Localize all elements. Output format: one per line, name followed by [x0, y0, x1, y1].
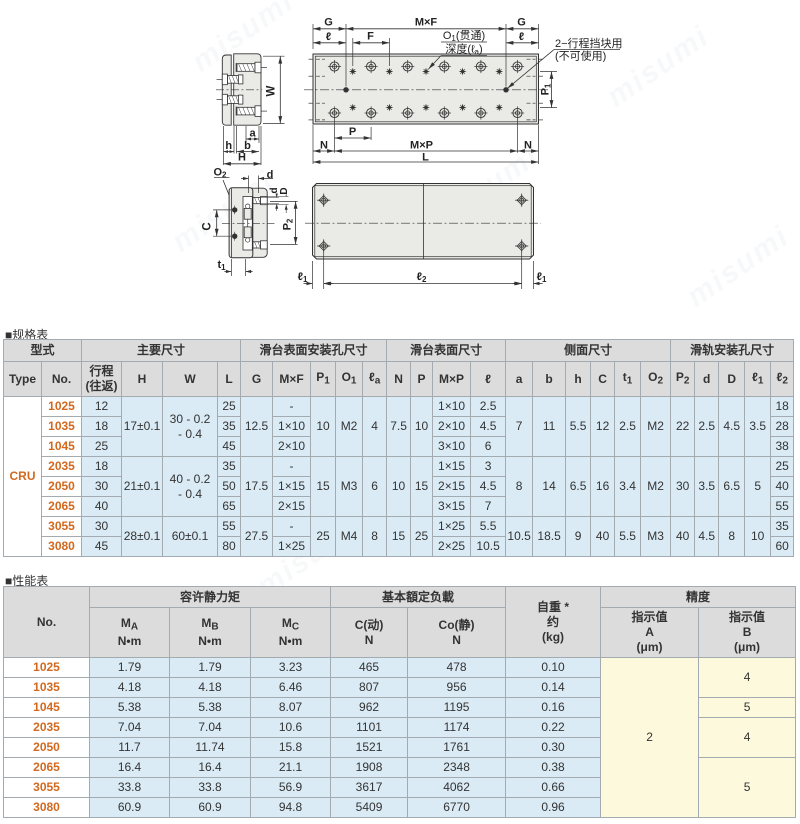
svg-text:2−行程挡块用: 2−行程挡块用 — [555, 36, 623, 50]
svg-text:深度(ℓa): 深度(ℓa) — [445, 41, 482, 56]
svg-text:P1: P1 — [540, 83, 553, 95]
svg-text:h: h — [225, 140, 232, 152]
svg-text:ℓ2: ℓ2 — [417, 271, 427, 284]
svg-text:G: G — [324, 17, 333, 29]
svg-text:L: L — [422, 151, 429, 163]
svg-text:M×P: M×P — [410, 140, 433, 152]
svg-text:t1: t1 — [217, 259, 226, 272]
svg-text:a: a — [249, 127, 256, 139]
svg-text:O1(贯通): O1(贯通) — [443, 29, 485, 43]
svg-text:ℓ: ℓ — [326, 31, 331, 43]
svg-text:b: b — [244, 140, 251, 152]
svg-text:H: H — [238, 151, 246, 163]
svg-text:W: W — [266, 85, 278, 96]
svg-text:ℓ1: ℓ1 — [537, 271, 547, 284]
svg-text:F: F — [367, 31, 374, 43]
svg-text:d: d — [267, 169, 274, 181]
svg-text:ℓ: ℓ — [519, 31, 524, 43]
svg-text:D: D — [279, 187, 290, 194]
svg-text:P2: P2 — [281, 218, 294, 230]
svg-text:N: N — [524, 140, 532, 152]
svg-text:ℓ1: ℓ1 — [298, 271, 308, 284]
svg-text:M×F: M×F — [415, 17, 438, 29]
svg-text:(不可使用): (不可使用) — [555, 50, 606, 63]
svg-text:P: P — [349, 126, 356, 138]
svg-text:N: N — [320, 140, 328, 152]
svg-text:C: C — [202, 222, 214, 230]
svg-text:G: G — [517, 17, 526, 29]
